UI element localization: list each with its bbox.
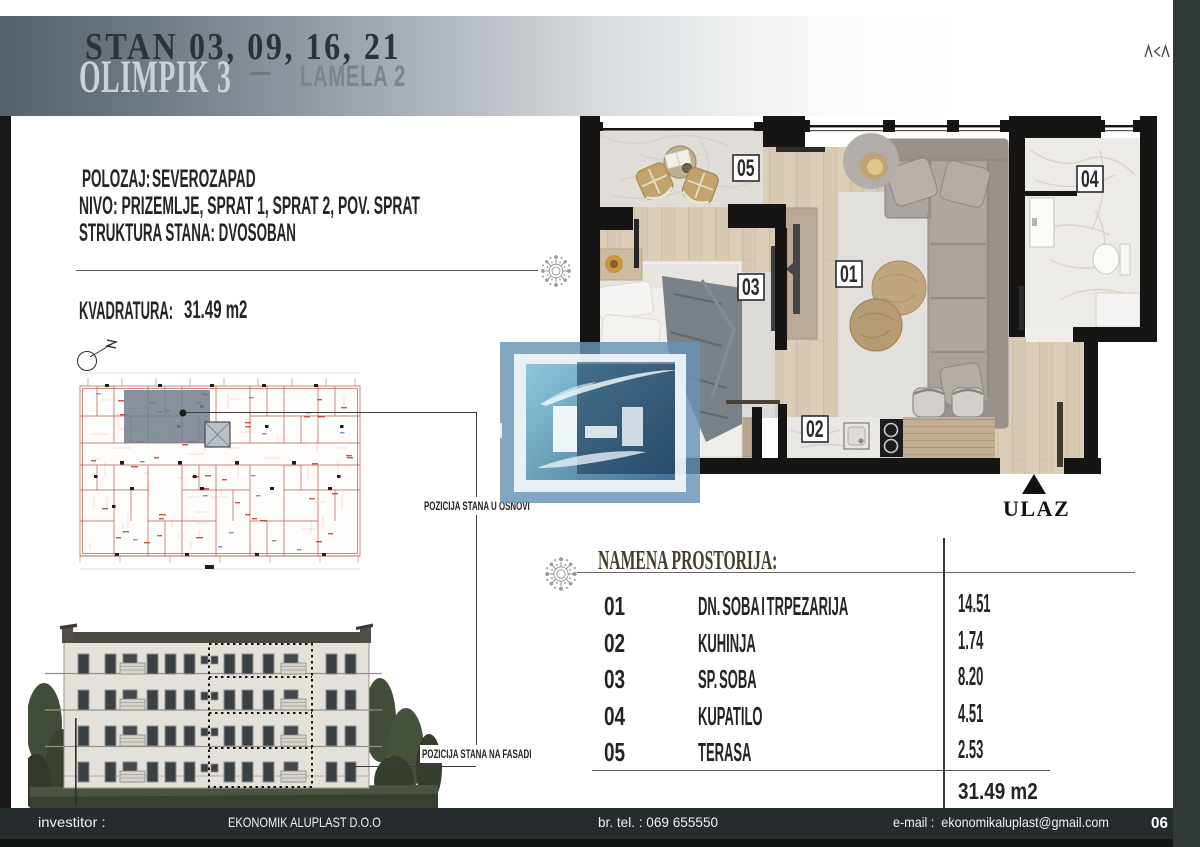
svg-text:ULAZ: ULAZ bbox=[1003, 496, 1070, 521]
svg-text:04: 04 bbox=[1081, 167, 1099, 193]
svg-text:05: 05 bbox=[737, 156, 755, 182]
svg-text:03: 03 bbox=[742, 275, 760, 301]
svg-text:02: 02 bbox=[806, 417, 824, 443]
svg-text:01: 01 bbox=[840, 262, 858, 288]
